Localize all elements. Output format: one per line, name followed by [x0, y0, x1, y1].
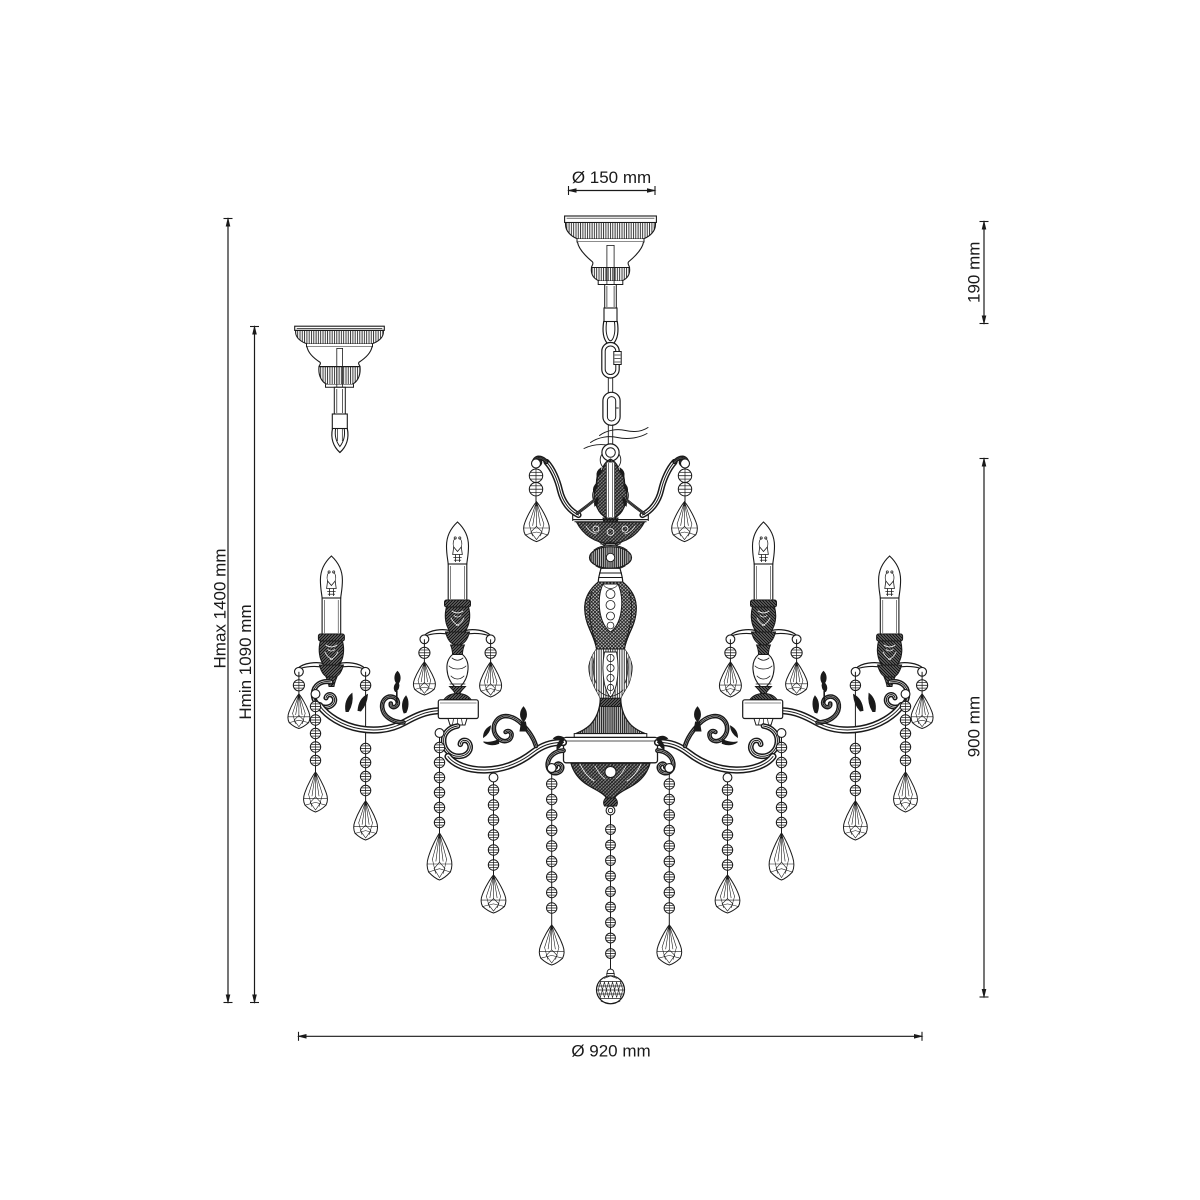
svg-text:190 mm: 190 mm — [965, 242, 984, 303]
svg-text:Ø 150 mm: Ø 150 mm — [572, 168, 651, 187]
svg-text:Ø 920 mm: Ø 920 mm — [571, 1042, 650, 1061]
svg-text:Hmin 1090 mm: Hmin 1090 mm — [236, 604, 255, 719]
svg-text:Hmax 1400 mm: Hmax 1400 mm — [210, 549, 229, 669]
svg-text:900 mm: 900 mm — [965, 696, 984, 757]
